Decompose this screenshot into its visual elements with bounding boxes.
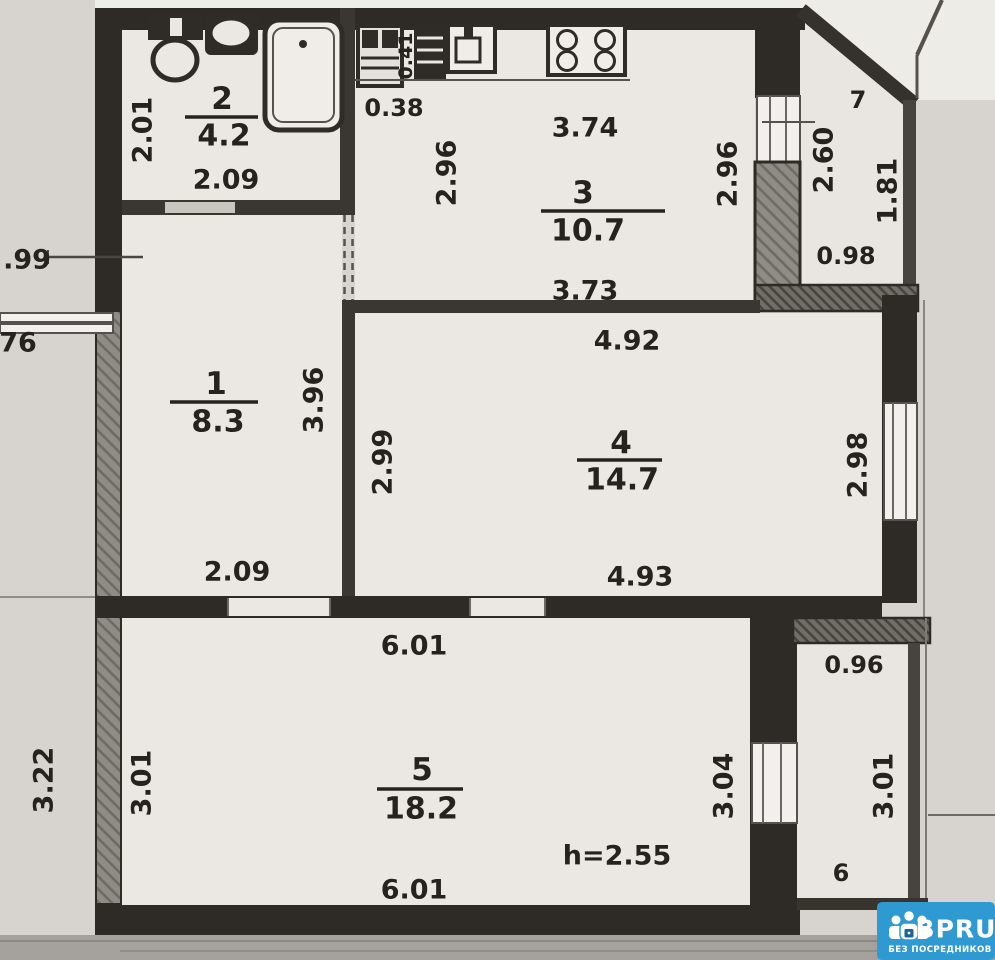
neighbor-dim-window: 76 [0,328,37,359]
wall-balcony-top-right [903,100,916,288]
watermark-brand-text: BPRU [916,915,995,944]
dim-kitchen-bottom: 3.73 [552,276,619,307]
floorplan-svg: 2 4.2 3 10.7 1 8.3 4 14.7 5 18.2 7 6 2.0… [0,0,995,960]
dim-balcony-top-bottom: 0.98 [816,242,875,270]
dim-living-bottom: 6.01 [381,875,448,906]
wall-balcony-bottom-right [908,643,920,898]
kitchen-area-label: 10.7 [551,214,625,249]
kitchen-balcony-window [757,96,800,162]
hallway-area-label: 8.3 [191,405,244,440]
wall-left-hatch-upper [97,312,120,596]
hallway-number-label: 1 [205,366,227,402]
dim-bedroom-left: 2.99 [368,429,399,496]
dim-hallway-height: 3.96 [299,367,330,434]
dim-balcony-top-left: 2.60 [809,127,840,194]
living-area-label: 18.2 [384,792,458,827]
wall-bottom [95,905,800,935]
balcony-top-number-label: 7 [850,86,867,114]
partition-bathroom-bottom [122,200,355,215]
ceiling-height-note: h=2.55 [563,841,671,872]
living-door-opening [228,598,330,616]
wall-balcony-bottom-top-hatch [793,618,930,643]
neighbor-dim-bottom: 3.22 [29,747,60,814]
wall-kitchen-right-top [755,8,800,98]
bedroom-number-label: 4 [610,425,632,461]
scanned-floorplan: 2 4.2 3 10.7 1 8.3 4 14.7 5 18.2 7 6 2.0… [0,0,995,960]
dim-kitchen-right: 2.96 [713,141,744,208]
dim-living-top: 6.01 [381,631,448,662]
dim-bedroom-bottom: 4.93 [607,562,674,593]
dim-balcony-bottom-top: 0.96 [824,651,883,679]
bathroom-number-label: 2 [211,81,233,117]
partition-hallway-bedroom [342,313,355,596]
living-number-label: 5 [411,752,433,788]
dim-living-left: 3.01 [127,750,158,817]
bathroom-sink-fixture [205,12,258,55]
bedroom-area-label: 14.7 [585,463,659,498]
kitchen-cabinet-fixture [414,25,446,80]
living-balcony-window [752,743,797,823]
bathtub-fixture [265,20,342,130]
wall-left-hatch-lower [97,618,120,903]
scan-bottom-band [0,935,995,960]
bedroom-window [884,403,917,520]
toilet-fixture [148,14,203,80]
kitchen-number-label: 3 [572,175,594,211]
dim-balcony-top-right: 1.81 [873,158,904,225]
dim-balcony-bottom-right: 3.01 [869,753,900,820]
bathroom-area-label: 4.2 [197,119,250,154]
dim-bathroom-height: 2.01 [128,97,159,164]
balcony-bottom-number-label: 6 [833,859,850,887]
bedroom-door-opening [470,598,545,616]
dim-bathroom-width: 2.09 [193,165,260,196]
dim-balcony-bottom-left: 3.04 [709,753,740,820]
dim-hallway-width: 2.09 [204,557,271,588]
dim-bathroom-gap-top: 0.41 [395,33,417,80]
wall-kitchen-right-hatch [755,162,800,302]
dim-kitchen-left: 2.96 [432,140,463,207]
dim-bedroom-top: 4.92 [594,326,661,357]
bathroom-door-opening [165,202,235,213]
watermark-tagline-text: БЕЗ ПОСРЕДНИКОВ [888,945,991,955]
dim-bathroom-gap: 0.38 [364,94,423,122]
neighbor-dim-top: .99 [3,245,51,276]
dim-kitchen-top: 3.74 [552,113,619,144]
kitchen-sink-fixture [448,25,495,72]
dim-bedroom-right: 2.98 [843,432,874,499]
watermark: BPRU БЕЗ ПОСРЕДНИКОВ [877,902,995,960]
neighbor-window [0,313,113,322]
stove-fixture [548,25,625,75]
